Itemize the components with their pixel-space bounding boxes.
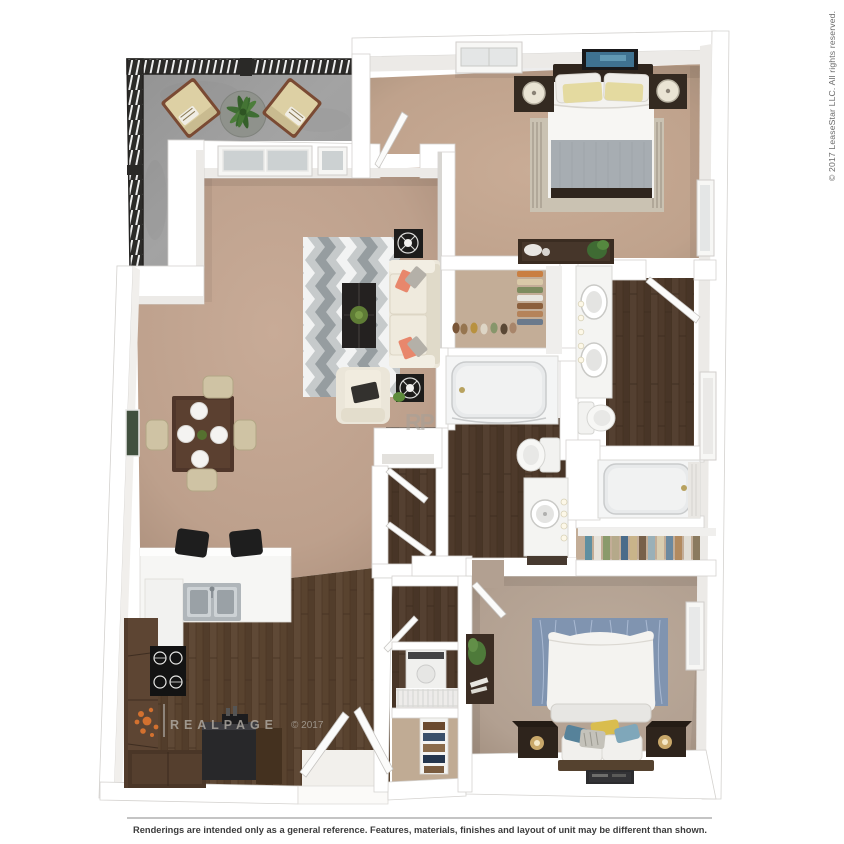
svg-text:© 2017 LeaseStar LLC. All righ: © 2017 LeaseStar LLC. All rights reserve… [827,11,837,181]
svg-text:REALPAGE: REALPAGE [170,718,280,732]
svg-text:Renderings are intended only a: Renderings are intended only as a genera… [133,825,707,835]
svg-text:RP: RP [405,409,435,435]
svg-text:© 2017: © 2017 [291,720,324,731]
